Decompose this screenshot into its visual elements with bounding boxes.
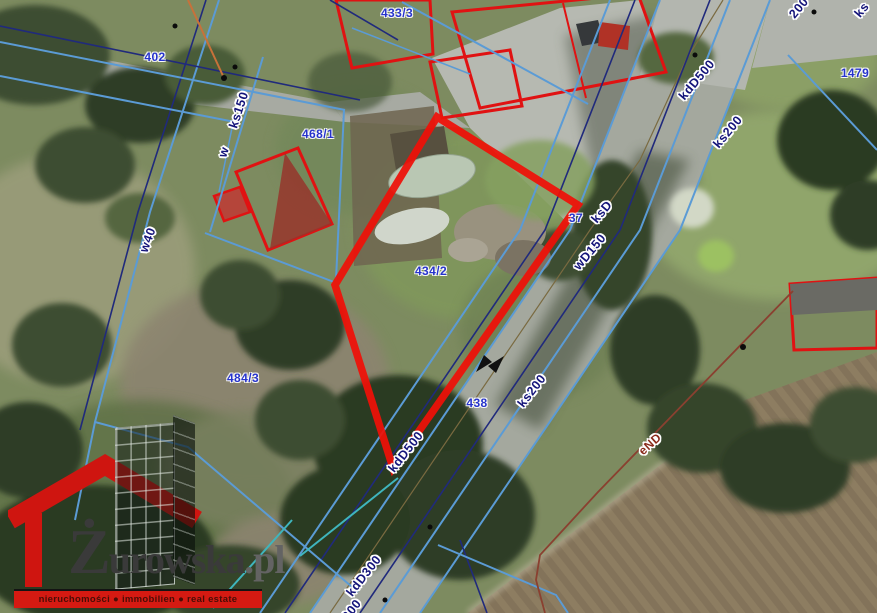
brand-rest: urowska <box>109 537 244 582</box>
brand-tagline: nieruchomości ● immobilien ● real estate <box>14 589 262 608</box>
blossoming-tree <box>670 188 714 228</box>
aerial-cadastral-map: 402433/3468/1434/2484/3438371479ks150ww4… <box>0 0 877 613</box>
brand-name: Żurowska.pl <box>68 413 308 589</box>
brand-tld: .pl <box>244 537 284 582</box>
agency-watermark: Żurowska.pl nieruchomości ● immobilien ●… <box>8 413 308 613</box>
brand-initial: Ż <box>68 516 109 587</box>
